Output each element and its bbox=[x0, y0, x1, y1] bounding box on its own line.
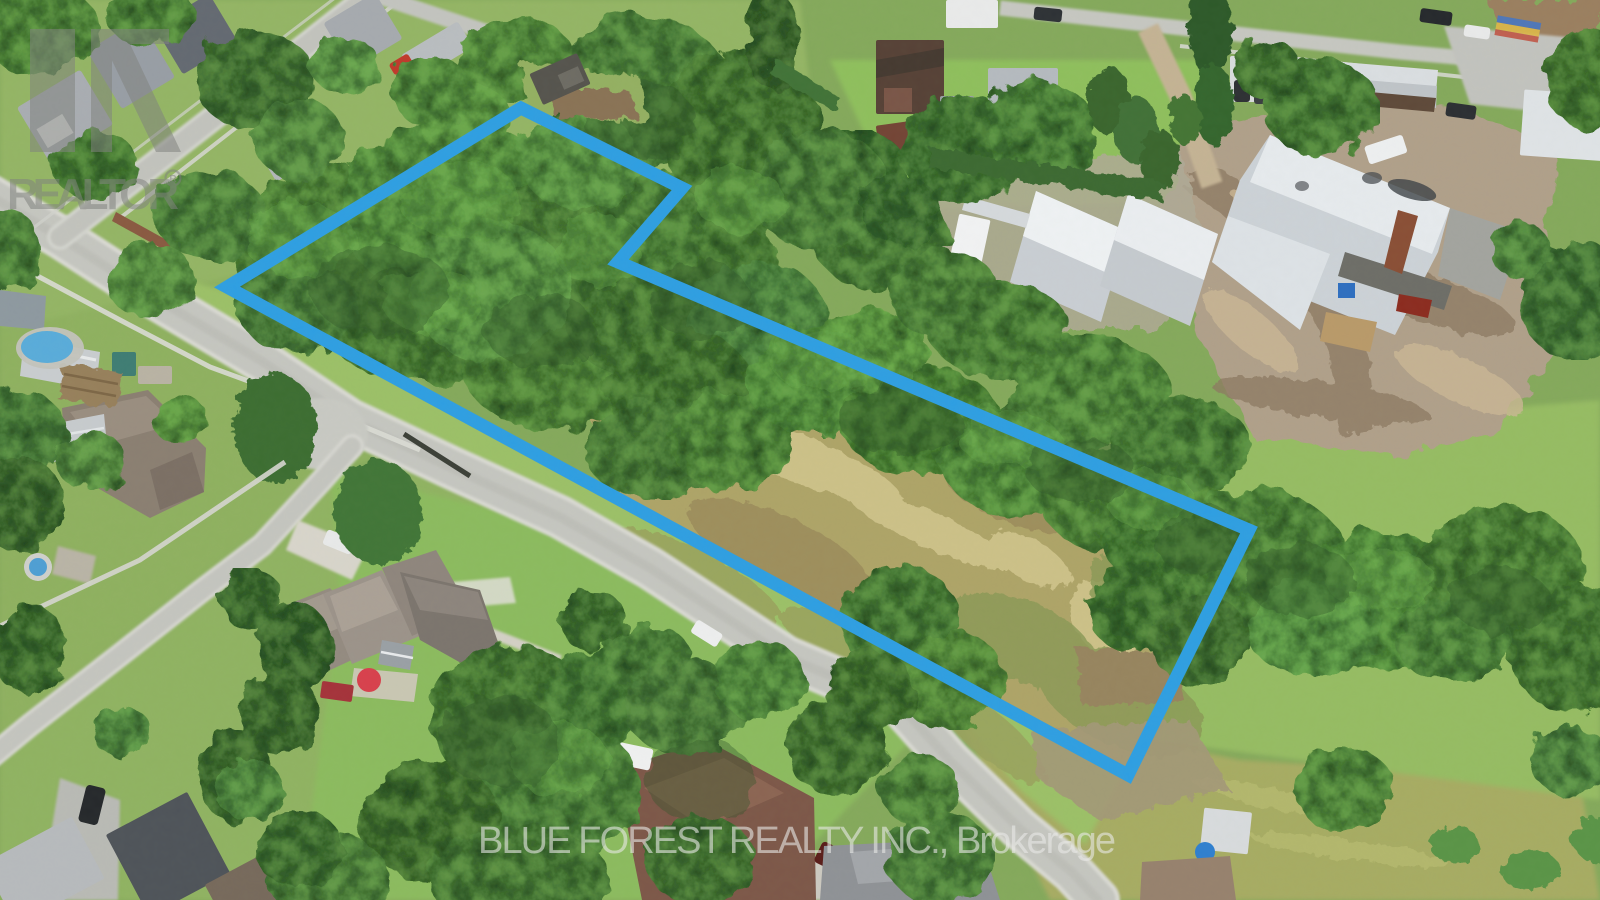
svg-text:R: R bbox=[169, 174, 177, 185]
svg-text:REALTOR: REALTOR bbox=[7, 170, 179, 219]
svg-text:BLUE FOREST REALTY INC., Broke: BLUE FOREST REALTY INC., Brokerage bbox=[478, 820, 1116, 862]
